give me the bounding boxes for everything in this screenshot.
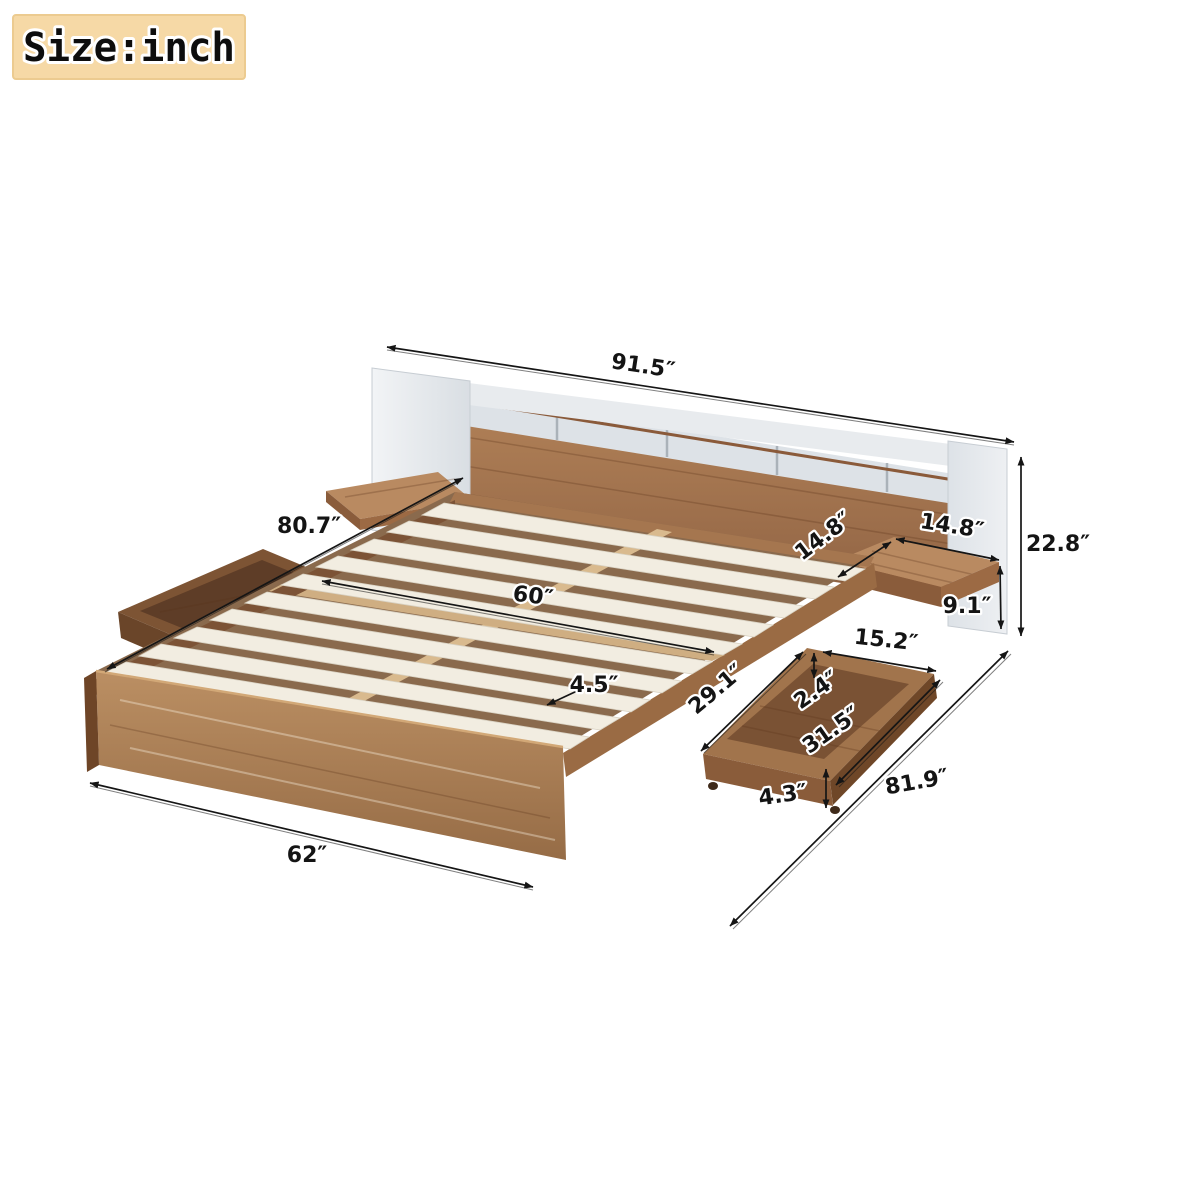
drawer-caster-wheel bbox=[708, 782, 718, 790]
bed-dimension-diagram: 91.5″ 80.7″ 60″ 4.5″ 14.8″ 14.8″ 9.1″ bbox=[0, 0, 1200, 1200]
dimension-label-15-2: 15.2″ bbox=[853, 625, 920, 657]
dimension-label-91-5: 91.5″ bbox=[610, 349, 677, 383]
bed-illustration: 91.5″ 80.7″ 60″ 4.5″ 14.8″ 14.8″ 9.1″ bbox=[0, 0, 1200, 1200]
dimension-label-62: 62″ bbox=[287, 843, 328, 868]
dimension-label-60: 60″ bbox=[511, 582, 554, 612]
dimension-label-80-7: 80.7″ bbox=[277, 514, 341, 539]
dimension-label-4-5: 4.5″ bbox=[570, 673, 619, 698]
bed-platform bbox=[84, 492, 877, 860]
drawer-caster-wheel bbox=[830, 806, 840, 814]
badge-label: Size:inch bbox=[23, 25, 235, 71]
dimension-label-4-3: 4.3″ bbox=[757, 780, 809, 812]
dimension-label-9-1: 9.1″ bbox=[943, 594, 992, 619]
dimension-headboard-height: 22.8″ bbox=[1021, 457, 1090, 636]
dimension-label-22-8: 22.8″ bbox=[1026, 532, 1090, 557]
size-unit-badge: Size:inch bbox=[13, 15, 245, 79]
